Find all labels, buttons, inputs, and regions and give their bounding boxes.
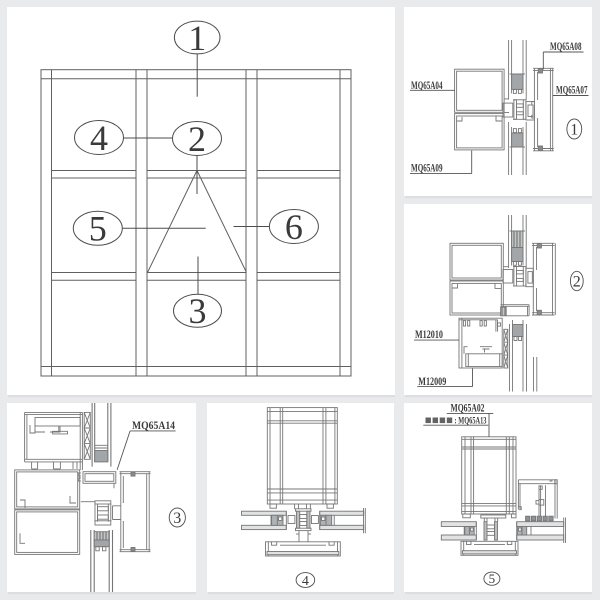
svg-text:2: 2 (188, 119, 206, 159)
svg-text:M12010: M12010 (415, 327, 443, 341)
svg-text:M12009: M12009 (418, 374, 446, 388)
svg-text:MQ65A09: MQ65A09 (411, 161, 443, 175)
svg-text:MQ65A02: MQ65A02 (451, 401, 485, 415)
svg-text:5: 5 (89, 209, 107, 249)
svg-text:: MQ65A13: : MQ65A13 (455, 415, 487, 425)
svg-text:2: 2 (573, 274, 581, 291)
svg-text:MQ65A04: MQ65A04 (411, 78, 443, 92)
svg-text:MQ65A14: MQ65A14 (132, 418, 175, 432)
svg-text:1: 1 (188, 18, 206, 58)
svg-text:1: 1 (570, 122, 578, 139)
svg-text:4: 4 (90, 118, 108, 158)
svg-text:MQ65A08: MQ65A08 (550, 39, 582, 53)
svg-text:3: 3 (173, 510, 181, 527)
svg-text:MQ65A07: MQ65A07 (556, 82, 588, 96)
svg-text:3: 3 (189, 291, 207, 331)
svg-text:4: 4 (302, 574, 309, 589)
svg-text:5: 5 (489, 571, 496, 586)
svg-text:6: 6 (285, 207, 303, 247)
